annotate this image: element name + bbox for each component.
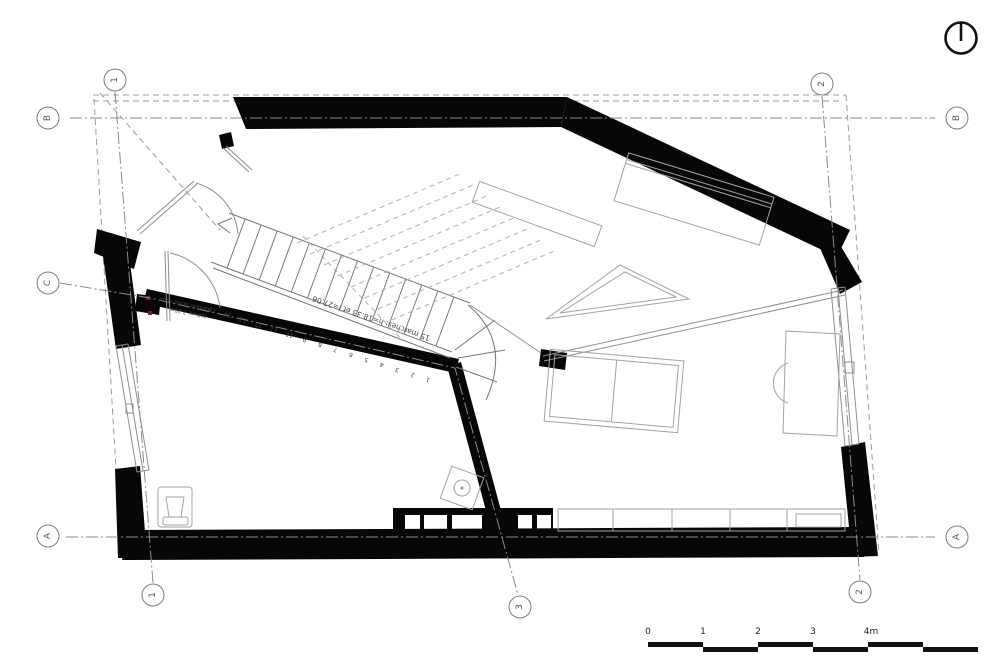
scale-label: 0 (645, 627, 651, 637)
grid-marker-label: 1 (148, 592, 158, 598)
wall-top-sloped (561, 97, 850, 257)
grid-marker-A: A (946, 526, 968, 548)
scale-label: 1 (700, 627, 706, 637)
step-number: 5 (363, 355, 369, 363)
step-number: 3 (394, 365, 400, 373)
grid-marker-label: 2 (817, 81, 827, 87)
scale-segment (868, 642, 923, 647)
grid-marker-label: 2 (855, 589, 865, 595)
step-number: 1 (425, 375, 431, 383)
north-indicator-icon (946, 23, 977, 54)
chair (773, 363, 788, 403)
window-left (116, 344, 149, 472)
stair-direction-arrow (218, 218, 232, 233)
desk-left (472, 181, 602, 246)
stair-tread (259, 231, 277, 280)
upper-flight-tread (378, 239, 543, 309)
beam-lines (470, 290, 845, 361)
stair-tread (243, 225, 261, 274)
scale-label: 2 (755, 627, 761, 637)
annotations: 15 marches: h=18.33 et l=27.06Hauteur br… (159, 294, 431, 383)
stair-tread (436, 297, 454, 346)
step-number: 6 (348, 350, 354, 358)
grid-marker-C: C (37, 272, 59, 294)
interior-walls (135, 289, 567, 533)
grid-marker-label: 3 (515, 604, 525, 610)
upper-flight-tread (351, 217, 516, 287)
grid-marker-B: B (946, 107, 968, 129)
upper-flight-tread (338, 206, 503, 276)
wall-top (233, 97, 567, 129)
upper-flight-tread (392, 250, 557, 320)
stair-tread (356, 267, 374, 316)
scale-bar-labels: 01234m (645, 627, 878, 637)
winder-tread (455, 320, 495, 350)
kitchen-unit-bay (518, 515, 532, 530)
upper-flight-tread (311, 184, 476, 254)
grid-marker-A: A (37, 525, 59, 547)
step-number: 4 (379, 360, 385, 368)
grid-marker-1: 1 (142, 584, 164, 606)
stair-tread (323, 255, 341, 304)
upper-flight-tread (324, 195, 489, 265)
grid-marker-label: B (43, 115, 53, 121)
entrance-door (137, 146, 252, 234)
grid-marker-label: A (952, 533, 962, 540)
door-swing-arc (196, 183, 238, 234)
kitchen-unit-bay (424, 515, 447, 530)
scale-bar: 01234m (645, 627, 978, 652)
upper-flight-tread (297, 173, 462, 243)
window-right (831, 287, 859, 446)
grid-marker-1: 1 (104, 69, 126, 91)
stair-upper-edge (229, 213, 470, 303)
triangle-fixture (546, 265, 689, 319)
grid-marker-label: C (43, 280, 53, 286)
floor-plan: 12BBCAA132 15 marches: h=18.33 et l=27.0… (0, 0, 1000, 666)
kitchen-unit-bay (405, 515, 420, 530)
wall-left-lower (115, 466, 147, 558)
desk-bottom-right (773, 331, 840, 436)
stair-tread (275, 237, 293, 286)
scale-segment (813, 647, 868, 652)
grid-marker-label: 1 (110, 77, 120, 83)
scale-segment (648, 642, 703, 647)
scale-segment (703, 647, 758, 652)
kitchen-unit-bay (452, 515, 482, 530)
winder-tread (458, 350, 505, 358)
overhang-chamfer-line (100, 93, 220, 230)
grid-marker-2: 2 (811, 73, 833, 95)
floor-plan-drawing: 12BBCAA132 15 marches: h=18.33 et l=27.0… (0, 0, 1000, 666)
kitchen-unit-bay (537, 515, 551, 530)
toilet (158, 487, 192, 527)
scale-segment (923, 647, 978, 652)
upper-flight-tread (365, 228, 530, 298)
grid-lines (60, 92, 935, 595)
grid-marker-B: B (37, 107, 59, 129)
revision-mark (148, 311, 152, 315)
stair-tread (307, 249, 325, 298)
grid-marker-3: 3 (509, 596, 531, 618)
stair-tread (372, 273, 390, 322)
scale-label: 3 (810, 627, 816, 637)
step-number: 2 (410, 370, 416, 378)
stair-tread (227, 219, 245, 268)
sink (796, 514, 841, 527)
grid-marker-label: B (952, 115, 962, 121)
step-number: 7 (333, 345, 339, 353)
stair-tread (291, 243, 309, 292)
grid-marker-label: A (43, 532, 53, 539)
grid-marker-2: 2 (849, 581, 871, 603)
scale-label: 4m (864, 627, 879, 637)
scale-segment (758, 642, 813, 647)
interior-wall-lower (447, 362, 506, 533)
